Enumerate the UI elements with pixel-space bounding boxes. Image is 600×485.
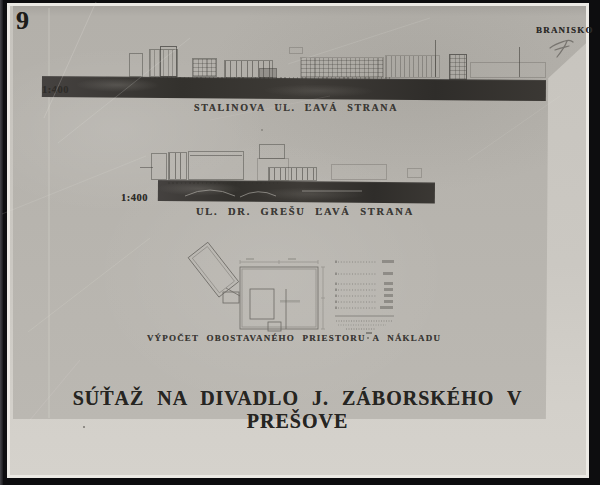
- building-outline: [385, 55, 440, 78]
- building-outline: [449, 54, 467, 80]
- handwritten-number-mark: [546, 36, 578, 62]
- elevation1-street-band: [42, 76, 546, 101]
- building-outline: [129, 53, 143, 77]
- building-outline: [331, 164, 387, 180]
- building-outline: [151, 153, 167, 180]
- building-colonnade: [168, 152, 187, 180]
- building-outline: [300, 57, 384, 78]
- sheet-fold-line: [48, 8, 50, 418]
- roof-line: [190, 155, 242, 156]
- board-number-stamp: 9: [16, 6, 30, 36]
- building-outline: [407, 168, 422, 178]
- building-outline: [160, 46, 177, 77]
- building-outline: [192, 58, 217, 77]
- micro-lettering: [150, 77, 390, 79]
- micro-lettering: [168, 182, 278, 184]
- elevation1-caption: STALINOVA UL. ĽAVÁ STRANA: [96, 102, 496, 113]
- mast-line: [435, 40, 436, 77]
- archival-photo-board: 9 BRANISKO 1:400 STALINOVA UL. ĽAVÁ STRA…: [0, 0, 600, 485]
- mast-line: [519, 47, 520, 77]
- building-outline: [259, 144, 285, 159]
- building-colonnade: [268, 167, 317, 181]
- signature-block: [335, 316, 394, 334]
- scale-label: 1:400: [121, 192, 148, 203]
- scale-label: 1:400: [42, 84, 69, 95]
- elevation2-caption: UL. DR. GREŠU ĽAVÁ STRANA: [105, 206, 505, 217]
- building-outline: [470, 62, 546, 78]
- rotated-wing: [188, 242, 238, 297]
- site-plan-drawing: [180, 242, 400, 338]
- competition-motto-stamp: BRANISKO: [536, 25, 594, 35]
- board-title: SÚŤAŽ NA DIVADLO J. ZÁBORSKÉHO V PREŠOVE: [20, 387, 575, 433]
- plan-caption: VÝPOČET OBOSTAVANÉHO PRIESTORU A NÁKLADU: [94, 333, 494, 343]
- building-outline: [289, 47, 303, 54]
- calculation-table: [338, 262, 376, 308]
